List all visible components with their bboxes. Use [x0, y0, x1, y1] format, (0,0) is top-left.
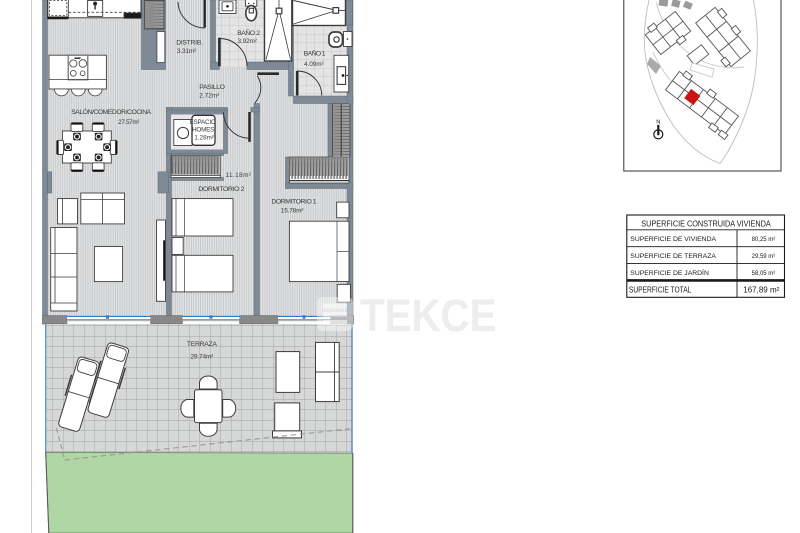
svg-text:DORMITORIO 2: DORMITORIO 2 — [198, 186, 244, 193]
svg-text:80,25 m²: 80,25 m² — [752, 237, 776, 243]
svg-text:SUPERFICIE DE TERRAZA: SUPERFICIE DE TERRAZA — [630, 253, 716, 260]
svg-text:2.72m²: 2.72m² — [199, 93, 219, 100]
svg-text:SUPERFICIE TOTAL: SUPERFICIE TOTAL — [629, 285, 692, 294]
svg-text:167,89 m²: 167,89 m² — [743, 285, 779, 294]
svg-text:TEKCE: TEKCE — [360, 290, 497, 341]
svg-text:3.31m²: 3.31m² — [177, 48, 196, 55]
svg-text:1.28m²: 1.28m² — [194, 134, 214, 141]
svg-text:ESPACIO: ESPACIO — [190, 119, 216, 126]
svg-text:TERRAZA: TERRAZA — [187, 341, 217, 348]
svg-text:29,59 m²: 29,59 m² — [752, 254, 776, 260]
svg-text:HOMES: HOMES — [192, 126, 214, 133]
svg-text:BAÑO 1: BAÑO 1 — [304, 49, 326, 58]
svg-text:DORMITORIO 1: DORMITORIO 1 — [271, 199, 316, 206]
svg-text:11.18m²: 11.18m² — [225, 172, 251, 179]
svg-text:DISTRIB.: DISTRIB. — [176, 40, 203, 47]
svg-text:58,05 m²: 58,05 m² — [752, 271, 776, 277]
svg-text:SUPERFICIE DE VIVIENDA: SUPERFICIE DE VIVIENDA — [630, 236, 716, 243]
svg-text:N: N — [656, 120, 660, 126]
svg-text:PASILLO: PASILLO — [199, 84, 225, 91]
svg-text:SUPERFICIE CONSTRUIDA VIVIENDA: SUPERFICIE CONSTRUIDA VIVIENDA — [641, 219, 771, 229]
svg-text:15.78m²: 15.78m² — [281, 208, 304, 215]
svg-text:SUPERFICIE DE JARDÍN: SUPERFICIE DE JARDÍN — [630, 268, 709, 277]
svg-text:BAÑO 2: BAÑO 2 — [237, 28, 260, 37]
svg-text:SALÓN/COMEDOR/COCINA: SALÓN/COMEDOR/COCINA — [71, 107, 151, 116]
svg-text:29.74m²: 29.74m² — [191, 354, 214, 361]
svg-text:3.92m²: 3.92m² — [238, 38, 257, 45]
svg-text:27.57m²: 27.57m² — [118, 119, 139, 126]
svg-text:4.09m²: 4.09m² — [304, 61, 324, 68]
